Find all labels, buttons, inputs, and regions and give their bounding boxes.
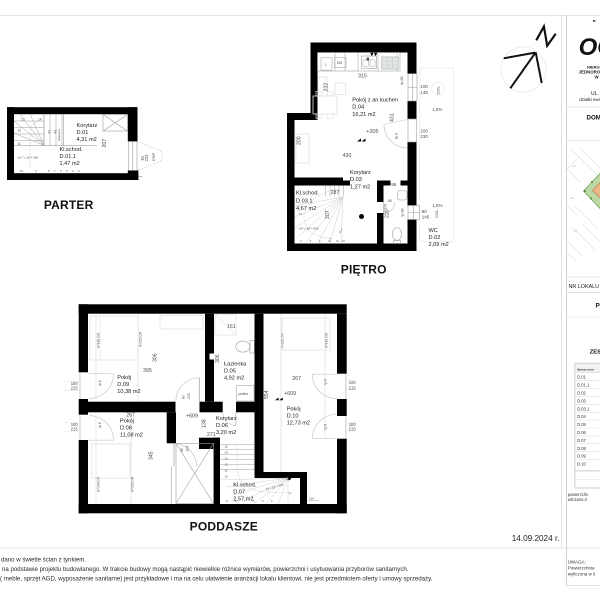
svg-text:Pokój: Pokój	[117, 375, 131, 381]
svg-text:200: 200	[296, 136, 302, 145]
svg-text:H=140 CM: H=140 CM	[325, 333, 329, 349]
svg-text:271: 271	[207, 432, 216, 438]
svg-text:D.03: D.03	[350, 177, 362, 183]
svg-text:95: 95	[391, 182, 397, 187]
svg-text:działki ewid: działki ewid	[579, 97, 600, 102]
svg-text:14: 14	[225, 451, 229, 455]
svg-text:1/7: 1/7	[574, 229, 578, 233]
svg-text:3,20 m2: 3,20 m2	[216, 430, 236, 436]
svg-text:4,31 m2: 4,31 m2	[77, 137, 97, 143]
svg-text:12: 12	[225, 463, 229, 467]
svg-text:Korytarz: Korytarz	[77, 123, 98, 129]
svg-text:L: L	[325, 63, 327, 67]
svg-text:D.02: D.02	[429, 235, 441, 241]
svg-text:OG: OG	[579, 34, 600, 61]
svg-text:+609: +609	[186, 413, 198, 419]
svg-text:315: 315	[358, 74, 367, 80]
svg-text:80: 80	[388, 199, 392, 203]
svg-text:Pokój: Pokój	[120, 418, 134, 424]
svg-text:ZESTAW: ZESTAW	[590, 350, 600, 356]
svg-text:D.05: D.05	[224, 368, 236, 374]
svg-text:215: 215	[349, 385, 357, 390]
svg-text:11,08 m2: 11,08 m2	[120, 433, 143, 439]
svg-text:430: 430	[343, 153, 352, 159]
svg-text:4,67 m2: 4,67 m2	[296, 206, 316, 212]
svg-text:D.07: D.07	[233, 489, 245, 495]
svg-text:80: 80	[182, 395, 186, 399]
svg-text:tp 6: tp 6	[98, 422, 102, 428]
svg-text:1/2: 1/2	[572, 164, 576, 168]
svg-text:145: 145	[422, 215, 430, 220]
svg-text:na podstawie projektu budowlan: na podstawie projektu budowlanego. W tra…	[2, 566, 409, 573]
svg-text:80: 80	[422, 209, 428, 214]
svg-text:395: 395	[143, 368, 152, 374]
svg-text:COL: COL	[436, 86, 441, 95]
svg-text:D.03.1: D.03.1	[296, 198, 312, 204]
svg-text:220: 220	[385, 209, 391, 218]
svg-text:10x4: 10x4	[309, 498, 315, 501]
svg-text:D.03: D.03	[577, 398, 586, 403]
svg-text:Pokój z an.kuchen: Pokój z an.kuchen	[352, 98, 398, 104]
svg-text:306: 306	[215, 354, 221, 363]
svg-text:PO: PO	[596, 302, 600, 309]
svg-text:16,21 m2: 16,21 m2	[352, 112, 375, 118]
svg-text:H=140 CM: H=140 CM	[97, 476, 101, 492]
svg-text:215: 215	[71, 386, 79, 391]
svg-text:D.02: D.02	[577, 391, 586, 396]
svg-text:szer.biegu: szer.biegu	[58, 129, 62, 141]
svg-text:14: 14	[38, 118, 42, 122]
svg-text:ZM: ZM	[337, 61, 342, 65]
svg-text:145: 145	[420, 90, 428, 95]
svg-text:223: 223	[144, 154, 149, 162]
svg-text:232: 232	[324, 83, 330, 92]
svg-text:D.09: D.09	[577, 454, 586, 459]
svg-text:161: 161	[227, 324, 236, 330]
svg-text:tp 5: tp 5	[324, 424, 328, 430]
svg-text:267: 267	[292, 376, 301, 382]
svg-text:100: 100	[349, 380, 357, 385]
svg-text:100: 100	[420, 84, 428, 89]
svg-text:PARTER: PARTER	[44, 198, 94, 212]
svg-text:Korytarz: Korytarz	[350, 170, 371, 176]
svg-text:306: 306	[153, 353, 159, 362]
svg-text:10,38 m2: 10,38 m2	[117, 389, 140, 395]
svg-text:D.01.1: D.01.1	[60, 154, 76, 160]
svg-text:COL: COL	[434, 209, 439, 218]
svg-text:13: 13	[21, 118, 25, 122]
svg-text:100: 100	[420, 129, 428, 134]
svg-text:Kl.schod.: Kl.schod.	[60, 147, 83, 153]
svg-text:UWAGA:: UWAGA:	[568, 560, 586, 565]
svg-text:15: 15	[47, 130, 51, 134]
svg-text:267: 267	[126, 413, 135, 419]
svg-text:D.03.1: D.03.1	[577, 406, 590, 411]
svg-text:11: 11	[299, 212, 302, 216]
svg-text:4,92 m2: 4,92 m2	[224, 376, 244, 382]
svg-text:D.10: D.10	[287, 413, 299, 419]
svg-text:D.05: D.05	[577, 422, 586, 427]
svg-text:205: 205	[384, 204, 388, 210]
svg-text:H=220 CM: H=220 CM	[131, 476, 135, 492]
svg-text:NR LOKALU: NR LOKALU	[569, 284, 600, 290]
svg-text:Kl.schod.: Kl.schod.	[233, 482, 256, 488]
svg-text:wyliczona w ś: wyliczona w ś	[568, 572, 596, 577]
svg-text:H=220 CM: H=220 CM	[139, 331, 143, 347]
svg-text:205: 205	[187, 393, 191, 399]
svg-text:15: 15	[225, 445, 229, 449]
svg-text:DOM: DOM	[587, 114, 600, 121]
svg-text:205: 205	[186, 446, 190, 452]
svg-text:D.08: D.08	[577, 446, 586, 451]
svg-text:Pokój: Pokój	[287, 406, 301, 412]
svg-text:12,73 m2: 12,73 m2	[287, 421, 310, 427]
svg-text:11: 11	[18, 142, 22, 146]
svg-text:D.10: D.10	[577, 462, 586, 467]
svg-text:2,57 m2: 2,57 m2	[233, 497, 253, 503]
svg-text:H=220 CM: H=220 CM	[281, 333, 285, 349]
svg-text:554: 554	[264, 390, 270, 399]
svg-text:tp 88: tp 88	[400, 209, 404, 217]
svg-text:16: 16	[53, 130, 57, 134]
svg-text:287: 287	[331, 190, 340, 196]
svg-text:od 7 x 16 = 365: od 7 x 16 = 365	[18, 156, 39, 160]
svg-text:13: 13	[225, 457, 229, 461]
svg-text:Korytarz: Korytarz	[216, 416, 237, 422]
svg-text:11: 11	[225, 469, 228, 473]
svg-text:+609: +609	[284, 391, 296, 397]
svg-text:+07 x 18 = 305: +07 x 18 = 305	[298, 226, 318, 230]
svg-text:2,09 m2: 2,09 m2	[429, 242, 449, 248]
svg-text:D.06: D.06	[216, 423, 228, 429]
svg-text:D.01: D.01	[77, 130, 89, 136]
svg-text:D.08: D.08	[120, 425, 132, 431]
svg-text:PIĘTRO: PIĘTRO	[341, 262, 387, 276]
svg-text:pralka: pralka	[239, 392, 248, 396]
svg-text:14.09.2024 r.: 14.09.2024 r.	[512, 534, 560, 543]
svg-text:1,5%: 1,5%	[432, 107, 442, 112]
svg-text:+305: +305	[366, 129, 378, 135]
svg-text:80: 80	[180, 448, 184, 452]
svg-text:dano w świetle ścian z tynkiem: dano w świetle ścian z tynkiem.	[1, 556, 86, 563]
svg-text:D.01: D.01	[577, 375, 586, 380]
svg-text:PODDASZE: PODDASZE	[190, 520, 258, 534]
svg-text:1,27 m2: 1,27 m2	[350, 184, 370, 190]
svg-text:138: 138	[202, 419, 208, 428]
svg-text:wliczana d: wliczana d	[568, 497, 588, 502]
svg-text:D.06: D.06	[577, 430, 586, 435]
svg-text:Powierzchnia: Powierzchnia	[568, 566, 595, 571]
svg-text:D.09: D.09	[117, 382, 129, 388]
svg-text:tp 5: tp 5	[324, 379, 328, 385]
svg-text:( meble, sprzęt AGD, wyposażen: ( meble, sprzęt AGD, wyposażenie sanitar…	[0, 575, 433, 582]
svg-text:tp 88: tp 88	[400, 77, 404, 85]
svg-text:10: 10	[225, 475, 229, 479]
svg-text:tp 6: tp 6	[98, 380, 102, 386]
svg-text:WC: WC	[429, 228, 438, 234]
svg-text:1/4: 1/4	[570, 196, 574, 200]
svg-text:D.04: D.04	[352, 105, 364, 111]
svg-text:345: 345	[149, 451, 155, 460]
svg-text:Łazienka: Łazienka	[224, 361, 247, 367]
svg-text:1,47 m2: 1,47 m2	[60, 161, 80, 167]
svg-text:1,5%: 1,5%	[433, 203, 443, 208]
svg-text:230: 230	[420, 134, 428, 139]
svg-text:D.04: D.04	[577, 414, 586, 419]
svg-text:207: 207	[102, 139, 108, 148]
svg-text:Kl.schod.: Kl.schod.	[296, 191, 319, 197]
svg-text:215: 215	[349, 427, 357, 432]
svg-text:DSP: DSP	[151, 152, 156, 161]
svg-text:207: 207	[325, 210, 331, 219]
svg-text:12: 12	[18, 129, 22, 133]
svg-text:D.07: D.07	[577, 438, 586, 443]
svg-text:Numer pom: Numer pom	[577, 367, 594, 371]
svg-text:tp 0: tp 0	[395, 133, 399, 139]
svg-text:D.01.1: D.01.1	[577, 383, 590, 388]
svg-text:215: 215	[71, 427, 79, 432]
svg-text:431: 431	[390, 113, 396, 122]
svg-text:": "	[593, 20, 596, 27]
